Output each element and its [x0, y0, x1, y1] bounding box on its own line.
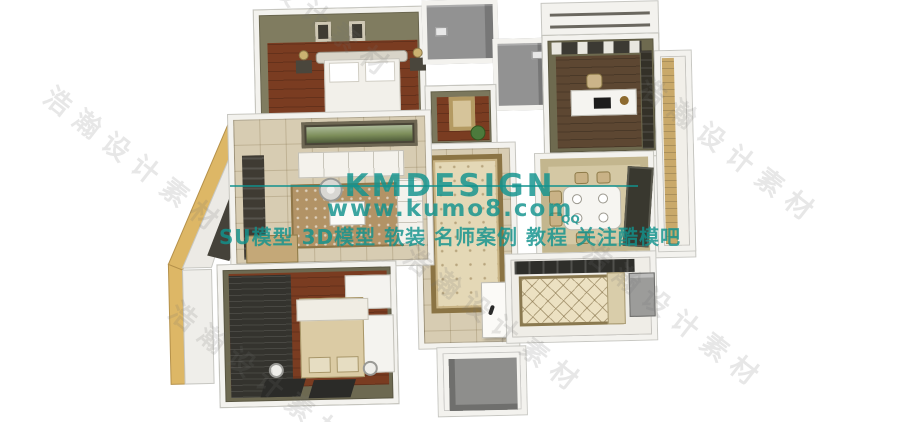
desk-chair	[586, 74, 602, 89]
bathroom-a	[421, 0, 498, 65]
table-lamp	[413, 48, 423, 58]
plate	[572, 194, 582, 204]
url-watermark: www.kumo8.com	[327, 196, 574, 222]
bed2	[299, 297, 365, 378]
desk	[571, 89, 638, 116]
landscape-painting	[301, 120, 418, 149]
pillow	[337, 356, 359, 372]
ceiling-beam	[550, 23, 650, 28]
tagline-watermark: SU模型 3D模型 软装 名师案例 教程 关注酷模吧	[219, 221, 681, 250]
study-window-band	[551, 41, 641, 55]
dining-chair	[596, 171, 610, 183]
entry-nook	[425, 85, 496, 149]
dining-chair	[574, 172, 588, 184]
ceiling-beam	[550, 11, 650, 16]
utility-floor	[449, 358, 518, 412]
nightstand	[296, 60, 312, 73]
roof-vent	[532, 51, 543, 59]
duvet	[296, 298, 368, 322]
pillow	[309, 357, 331, 373]
roof-vent	[435, 27, 447, 36]
desk-lamp	[620, 96, 629, 105]
painting-canvas	[306, 125, 412, 143]
laptop	[594, 97, 611, 108]
console-picture	[449, 96, 476, 131]
plate	[598, 193, 608, 203]
floorplan-render: 浩瀚设计素材 浩瀚设计素材 浩瀚设计素材 浩瀚设计素材 浩瀚设计素材 浩瀚设计素…	[0, 0, 900, 422]
